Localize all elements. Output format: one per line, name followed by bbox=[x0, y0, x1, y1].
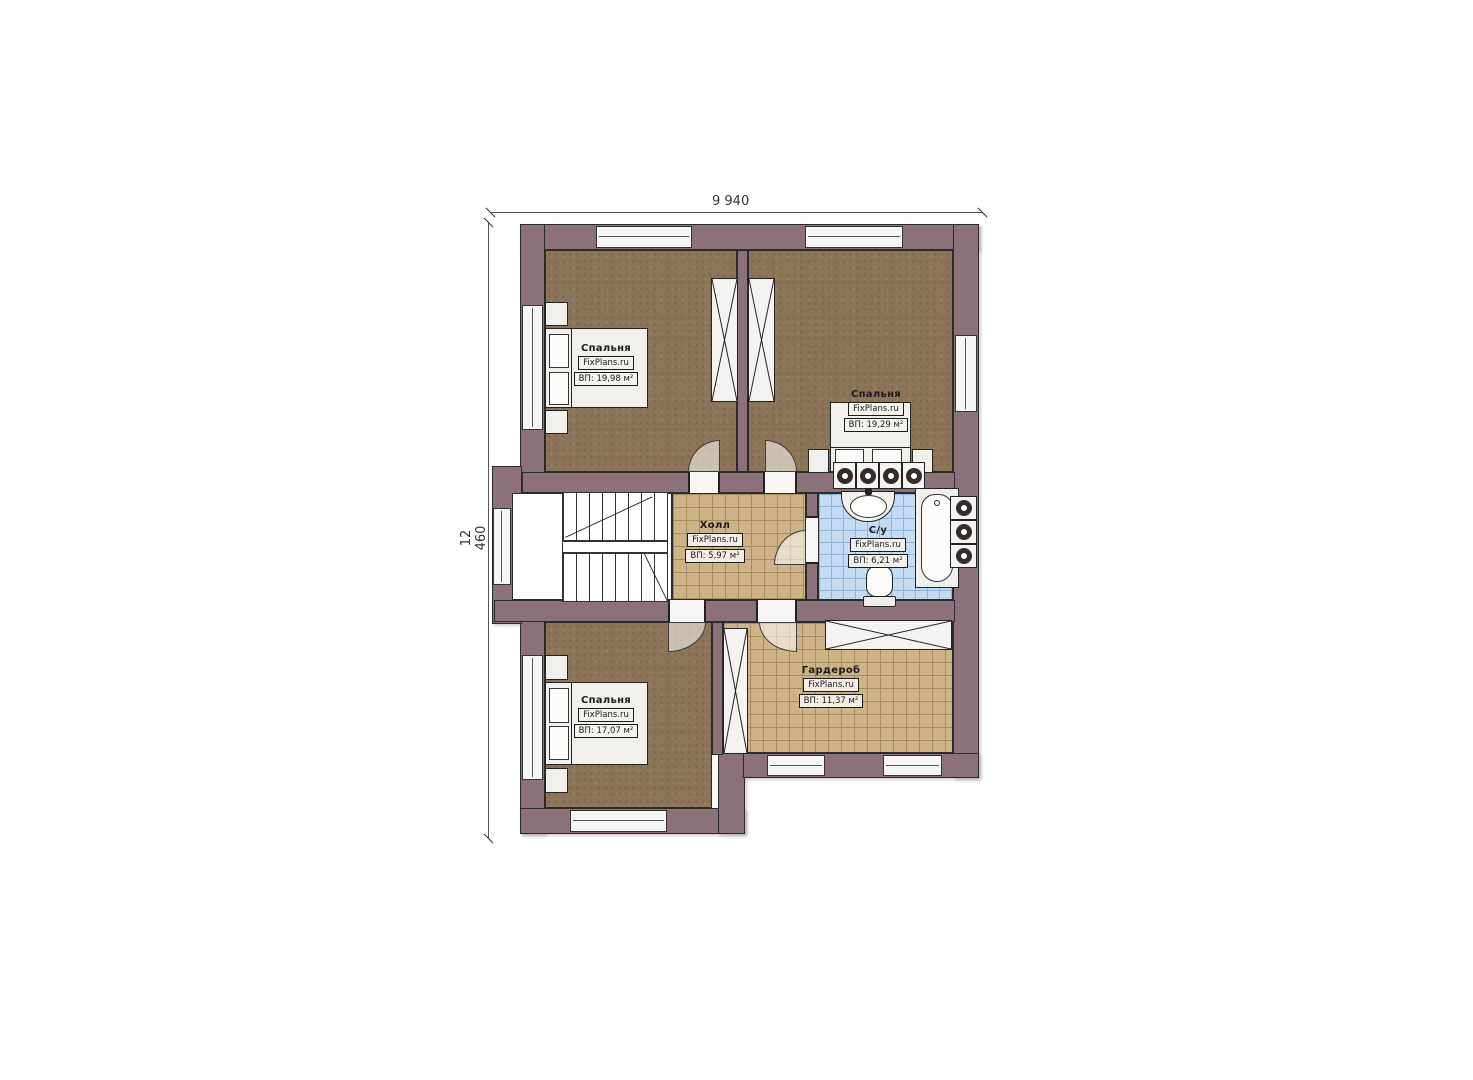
room-name: С/у bbox=[869, 525, 887, 536]
plan-source: FixPlans.ru bbox=[850, 538, 906, 552]
wall-bedroom-wardrobe bbox=[712, 622, 723, 755]
nightstand bbox=[808, 449, 829, 473]
window-wardrobe-left bbox=[767, 755, 825, 776]
wardrobe-cabinet bbox=[723, 628, 748, 754]
nightstand bbox=[545, 655, 568, 680]
wall-top bbox=[520, 224, 979, 250]
room-label-bedroom-top-right: Спальня FixPlans.ru ВП: 19,29 м² bbox=[828, 389, 924, 432]
nightstand bbox=[545, 410, 568, 434]
door-opening-bedroom-top-right bbox=[763, 472, 797, 493]
vent-stack-row bbox=[833, 462, 925, 489]
room-area: ВП: 5,97 м² bbox=[685, 549, 744, 563]
room-label-bedroom-top-left: Спальня FixPlans.ru ВП: 19,98 м² bbox=[558, 343, 654, 386]
room-area: ВП: 11,37 м² bbox=[799, 694, 864, 708]
plan-source: FixPlans.ru bbox=[848, 402, 904, 416]
room-name: Спальня bbox=[581, 695, 631, 706]
window-top-bedroom-right bbox=[805, 226, 903, 248]
window-wardrobe-right bbox=[883, 755, 942, 776]
room-name: Спальня bbox=[581, 343, 631, 354]
room-label-bedroom-bottom-left: Спальня FixPlans.ru ВП: 17,07 м² bbox=[558, 695, 654, 738]
room-label-bathroom: С/у FixPlans.ru ВП: 6,21 м² bbox=[830, 525, 926, 568]
plan-source: FixPlans.ru bbox=[687, 533, 743, 547]
room-name: Спальня bbox=[851, 389, 901, 400]
plan-source: FixPlans.ru bbox=[578, 356, 634, 370]
wardrobe-cabinet bbox=[711, 278, 738, 402]
stairs-upper-flight bbox=[562, 492, 668, 541]
room-area: ВП: 17,07 м² bbox=[574, 724, 639, 738]
window-right-bedroom bbox=[955, 335, 977, 412]
plan-source: FixPlans.ru bbox=[578, 708, 634, 722]
floor-plan-canvas: 9 940 12 460 bbox=[0, 0, 1473, 1080]
window-left-bedroom-bottom bbox=[522, 655, 543, 780]
window-stairwell bbox=[493, 508, 511, 585]
door-opening-wardrobe bbox=[756, 600, 797, 622]
toilet bbox=[862, 562, 898, 608]
door-opening-bathroom bbox=[806, 516, 818, 564]
plan-source: FixPlans.ru bbox=[803, 678, 859, 692]
room-area: ВП: 6,21 м² bbox=[848, 554, 907, 568]
room-area: ВП: 19,29 м² bbox=[844, 418, 909, 432]
nightstand bbox=[545, 768, 568, 793]
dimension-line-width bbox=[490, 212, 982, 213]
room-label-wardrobe: Гардероб FixPlans.ru ВП: 11,37 м² bbox=[783, 665, 879, 708]
room-area: ВП: 19,98 м² bbox=[574, 372, 639, 386]
window-left-bedroom-top bbox=[522, 305, 543, 430]
vent-stack-column bbox=[950, 496, 977, 568]
stairs-lower-flight bbox=[562, 553, 668, 602]
wall-between-top-bedrooms bbox=[737, 250, 748, 472]
wardrobe-cabinet bbox=[748, 278, 775, 402]
door-opening-bedroom-top-left bbox=[688, 472, 720, 493]
wall-step bbox=[718, 753, 745, 834]
wardrobe-cabinet bbox=[825, 620, 952, 650]
room-label-hall: Холл FixPlans.ru ВП: 5,97 м² bbox=[667, 520, 763, 563]
window-top-bedroom-left bbox=[596, 226, 692, 248]
door-opening-bedroom-bottom-left bbox=[668, 600, 706, 622]
room-name: Гардероб bbox=[802, 665, 861, 676]
window-bottom-bedroom bbox=[570, 810, 667, 832]
room-name: Холл bbox=[700, 520, 730, 531]
dimension-height-label: 12 460 bbox=[459, 516, 489, 560]
stairs-landing-gap bbox=[562, 541, 668, 553]
nightstand bbox=[545, 302, 568, 326]
dimension-width-label: 9 940 bbox=[712, 194, 749, 209]
